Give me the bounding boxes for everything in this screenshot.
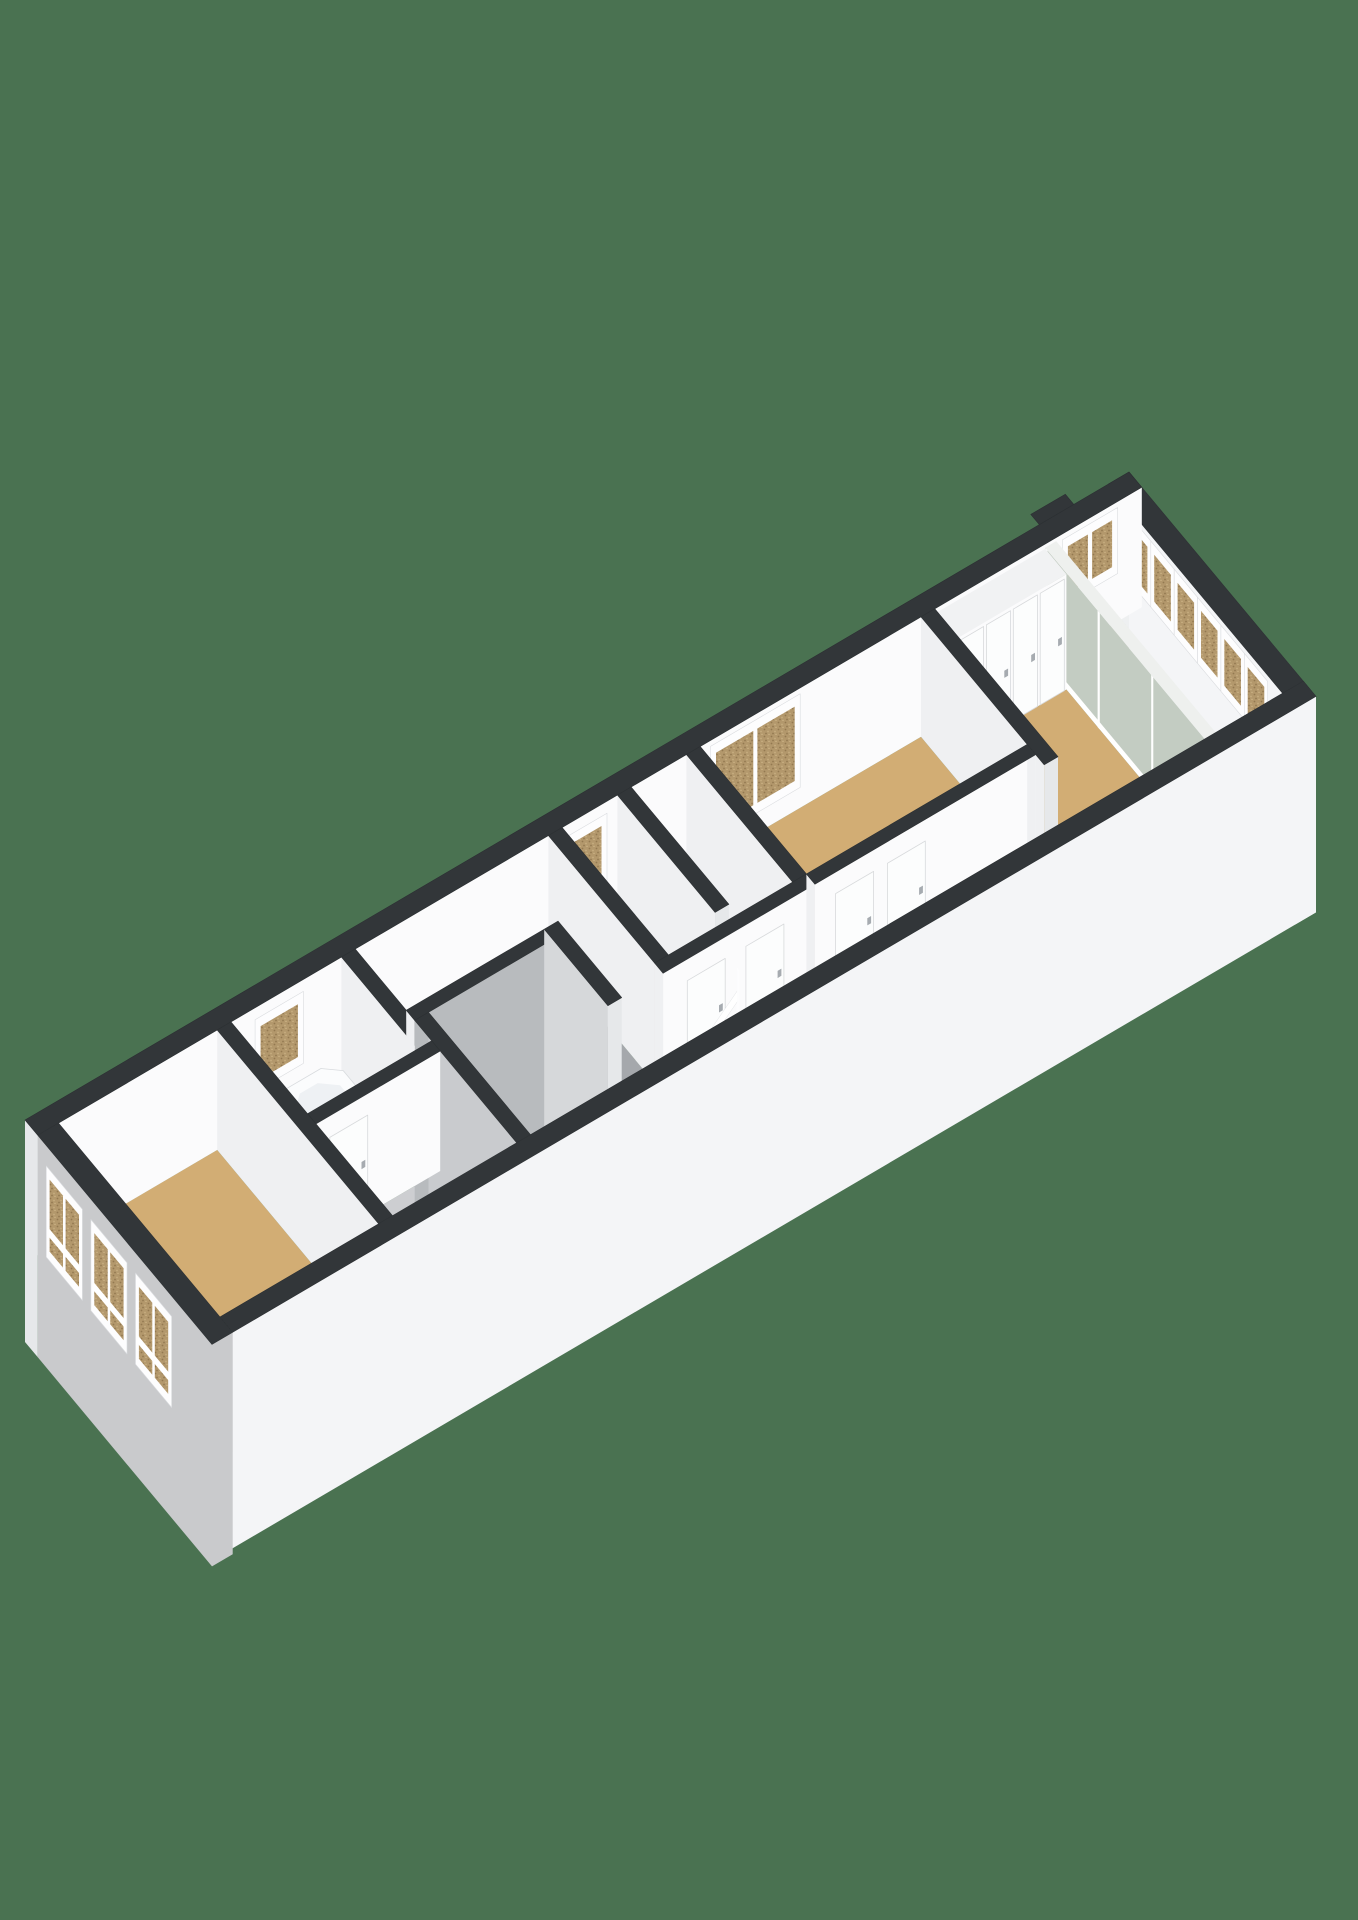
floorplan-canvas bbox=[0, 0, 1358, 1920]
wall-exterior-northwest-face-w bbox=[25, 1120, 38, 1357]
glass-sliding-wall-mullion-2 bbox=[1098, 611, 1100, 730]
floorplan-3d-render bbox=[0, 0, 1358, 1920]
wall-exterior-southwest-facade-face-s bbox=[212, 1332, 233, 1566]
